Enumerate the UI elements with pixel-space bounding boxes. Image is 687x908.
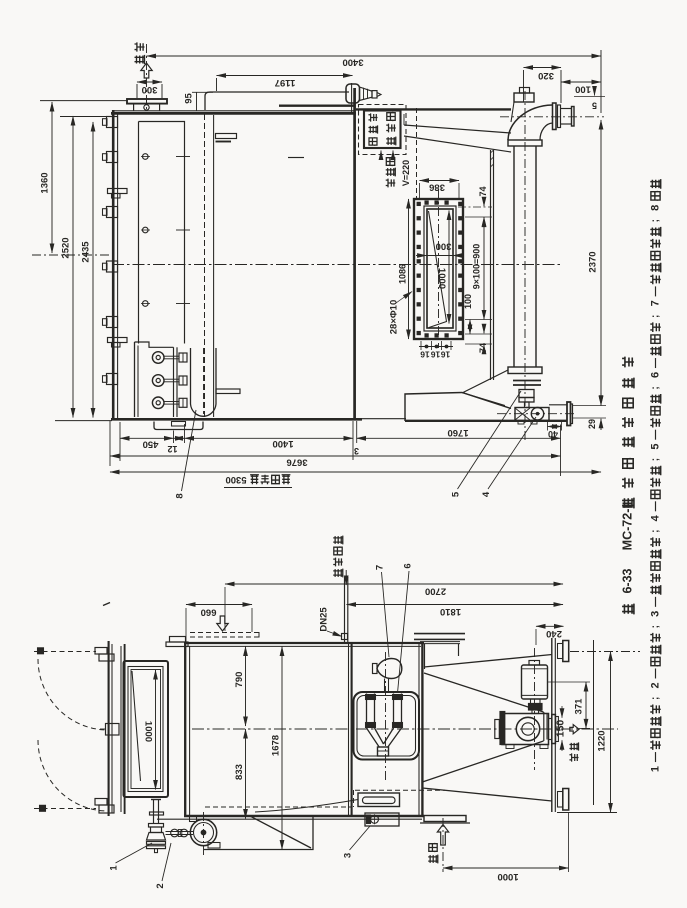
svg-text:12: 12 (167, 444, 177, 454)
svg-text:660: 660 (201, 606, 217, 617)
svg-text:1086: 1086 (397, 264, 407, 284)
svg-text:7: 7 (649, 300, 661, 306)
svg-text:3676: 3676 (286, 456, 307, 467)
svg-text:1678: 1678 (271, 735, 282, 756)
svg-text:1360: 1360 (40, 172, 51, 193)
svg-text:29: 29 (587, 419, 597, 429)
svg-text:2435: 2435 (81, 241, 92, 263)
svg-text:2370: 2370 (588, 251, 599, 272)
svg-text:DN25: DN25 (319, 607, 330, 632)
svg-text:8: 8 (649, 205, 661, 211)
svg-text:16: 16 (431, 349, 441, 359)
svg-text:6-33: 6-33 (620, 568, 634, 593)
svg-text:833: 833 (234, 764, 245, 780)
svg-text:8: 8 (175, 493, 186, 498)
svg-text:1810: 1810 (440, 606, 461, 617)
svg-text:5: 5 (649, 444, 661, 450)
svg-text:1000: 1000 (497, 871, 518, 882)
svg-text:6: 6 (403, 563, 414, 568)
svg-text:5: 5 (592, 101, 597, 111)
svg-text:1760: 1760 (447, 427, 468, 438)
svg-text:6: 6 (649, 372, 661, 378)
svg-text:1: 1 (649, 766, 661, 772)
svg-text:240: 240 (546, 628, 562, 639)
svg-text:2700: 2700 (425, 585, 446, 596)
svg-text:;: ; (650, 219, 661, 222)
svg-text:28×Φ10: 28×Φ10 (389, 300, 400, 334)
svg-text:V=220: V=220 (401, 160, 411, 186)
svg-text:;: ; (650, 386, 661, 389)
svg-text:2520: 2520 (61, 237, 72, 258)
svg-text:;: ; (650, 315, 661, 318)
svg-text:;: ; (650, 625, 661, 628)
svg-text:40: 40 (548, 429, 558, 439)
svg-text:74: 74 (478, 186, 488, 196)
svg-text:2: 2 (155, 883, 166, 888)
svg-text:1400: 1400 (272, 438, 293, 449)
svg-text:5: 5 (451, 491, 462, 497)
svg-text:1220: 1220 (597, 730, 608, 751)
svg-text:7: 7 (375, 565, 386, 570)
svg-text:5300: 5300 (225, 474, 246, 485)
svg-text:16: 16 (441, 349, 451, 359)
svg-text:74: 74 (478, 343, 488, 353)
svg-text:;: ; (650, 697, 661, 700)
svg-text:2: 2 (649, 682, 661, 688)
svg-text:MC-72-II: MC-72-II (620, 502, 634, 551)
svg-text:300: 300 (142, 84, 158, 95)
svg-text:371: 371 (574, 698, 585, 715)
svg-text:1197: 1197 (275, 77, 296, 88)
svg-text:386: 386 (429, 181, 445, 192)
svg-text:100: 100 (575, 83, 591, 94)
svg-text:3400: 3400 (342, 56, 363, 67)
svg-text:3: 3 (354, 446, 359, 456)
svg-text:;: ; (650, 530, 661, 533)
svg-text:150: 150 (554, 720, 566, 738)
svg-text:790: 790 (234, 672, 245, 688)
svg-text:1000: 1000 (436, 268, 447, 289)
svg-text:9×100=900: 9×100=900 (471, 244, 481, 290)
svg-text:;: ; (650, 458, 661, 461)
svg-text:3: 3 (343, 853, 354, 858)
svg-text:4: 4 (481, 491, 492, 497)
svg-text:1000: 1000 (142, 721, 153, 742)
svg-text:450: 450 (143, 438, 159, 449)
svg-text:100: 100 (463, 294, 473, 309)
svg-text:1: 1 (109, 865, 120, 871)
svg-text:95: 95 (184, 93, 195, 104)
svg-text:320: 320 (538, 70, 554, 81)
svg-text:3: 3 (649, 611, 661, 617)
svg-text:4: 4 (649, 514, 661, 521)
svg-text:16: 16 (420, 349, 430, 359)
